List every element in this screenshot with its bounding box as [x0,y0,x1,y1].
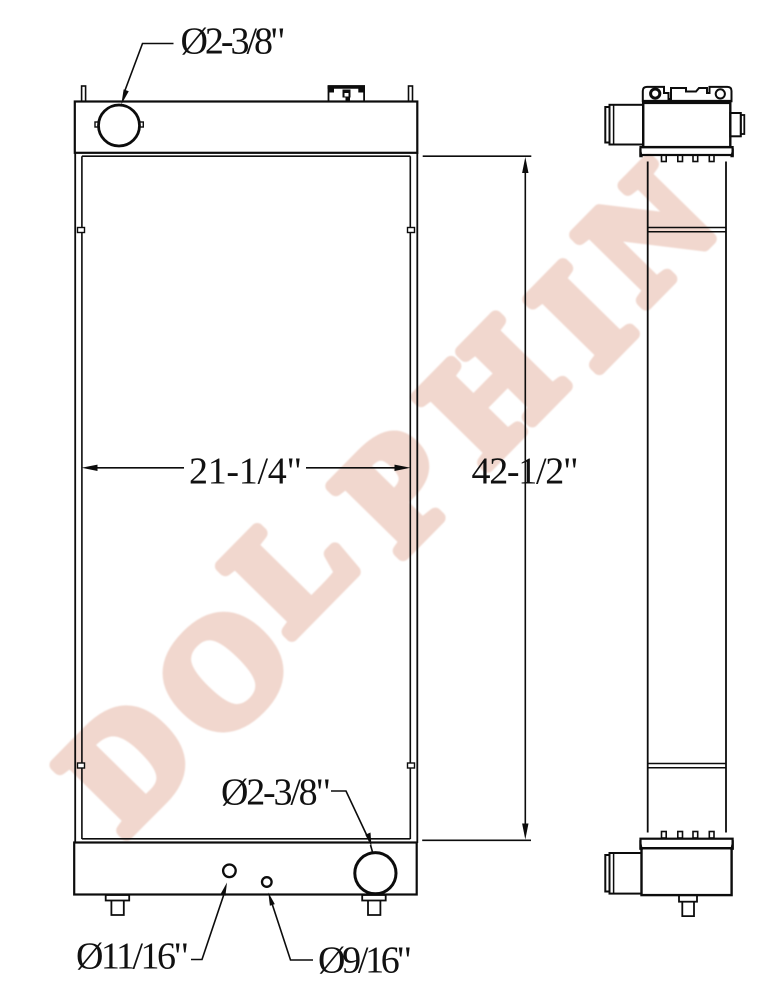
svg-text:Ø11/16": Ø11/16" [76,936,189,978]
svg-text:Ø2-3/8": Ø2-3/8" [221,772,331,814]
svg-text:Ø2-3/8": Ø2-3/8" [181,21,286,63]
svg-text:21-1/4": 21-1/4" [189,451,302,493]
svg-text:42-1/2": 42-1/2" [472,451,579,493]
svg-text:Ø9/16": Ø9/16" [318,940,412,982]
